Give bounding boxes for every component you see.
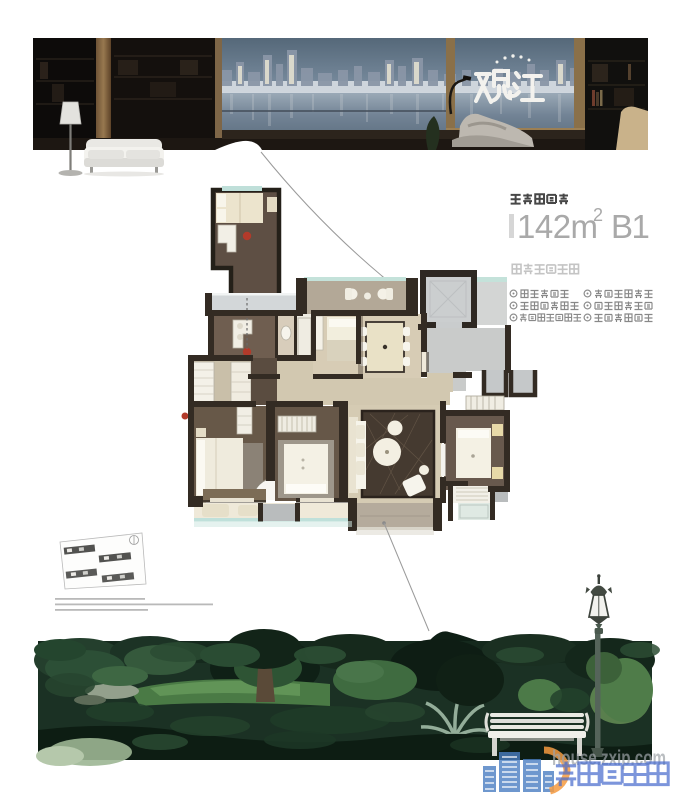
svg-text:142m: 142m xyxy=(517,208,598,245)
svg-text:B1: B1 xyxy=(611,208,649,245)
svg-text:2: 2 xyxy=(593,205,603,225)
